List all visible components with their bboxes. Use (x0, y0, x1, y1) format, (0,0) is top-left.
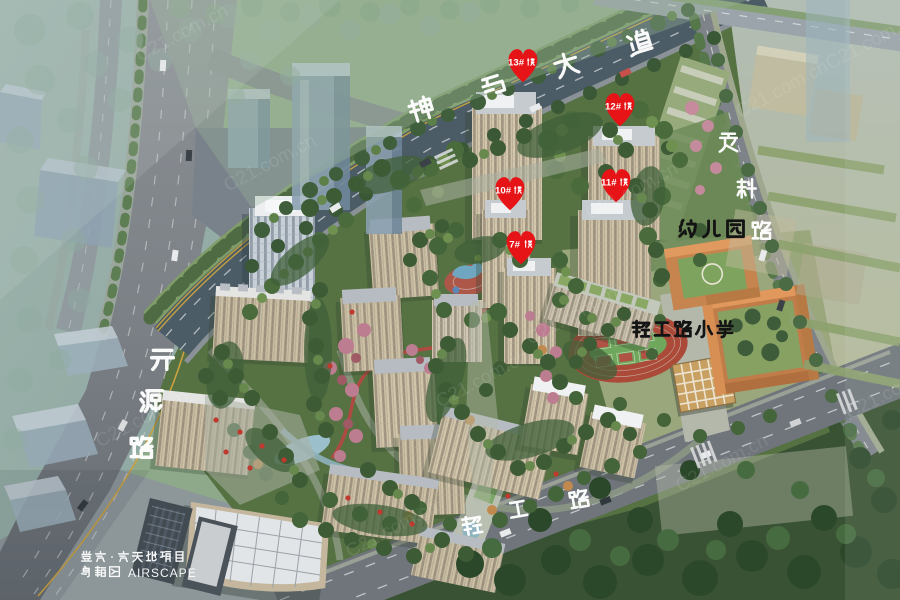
svg-text:11#: 11# (601, 178, 617, 189)
svg-text:7#: 7# (509, 240, 520, 251)
svg-text:AIRSCAPE: AIRSCAPE (128, 566, 197, 580)
svg-text:12#: 12# (605, 102, 622, 113)
svg-text:13#: 13# (508, 58, 525, 69)
svg-text:10#: 10# (495, 186, 512, 197)
